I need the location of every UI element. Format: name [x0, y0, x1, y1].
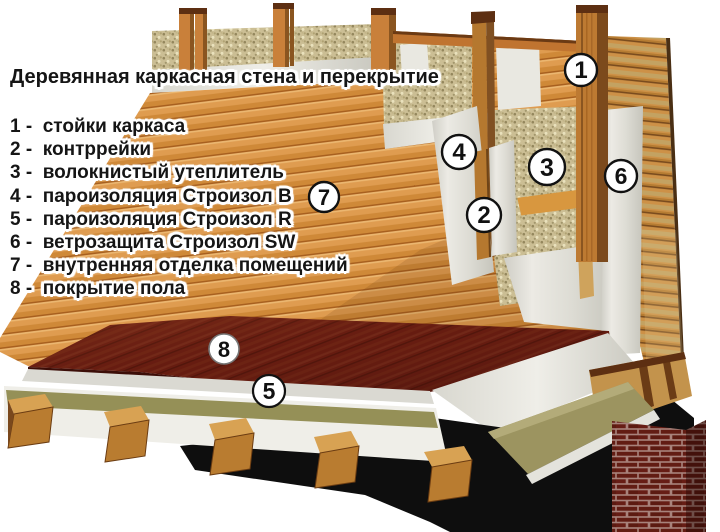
svg-text:3: 3	[540, 154, 554, 182]
svg-text:1: 1	[574, 57, 587, 84]
svg-text:7: 7	[318, 185, 330, 210]
svg-text:4: 4	[452, 139, 466, 166]
svg-text:5: 5	[263, 378, 276, 404]
svg-text:2: 2	[477, 202, 490, 229]
svg-text:6: 6	[615, 163, 628, 189]
svg-text:8: 8	[218, 337, 230, 362]
